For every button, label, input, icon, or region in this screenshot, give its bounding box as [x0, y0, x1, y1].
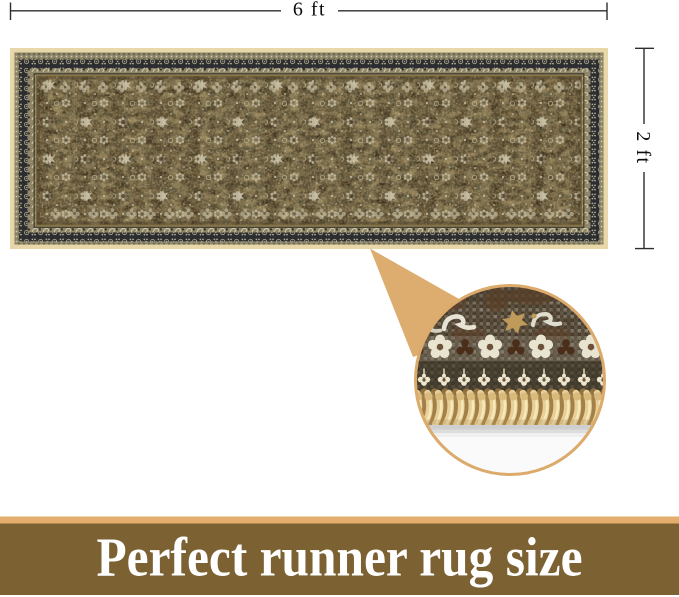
svg-text:2 ft: 2 ft	[632, 131, 654, 164]
svg-text:6 ft: 6 ft	[293, 0, 326, 21]
svg-text:Perfect runner rug size: Perfect runner rug size	[97, 527, 583, 588]
